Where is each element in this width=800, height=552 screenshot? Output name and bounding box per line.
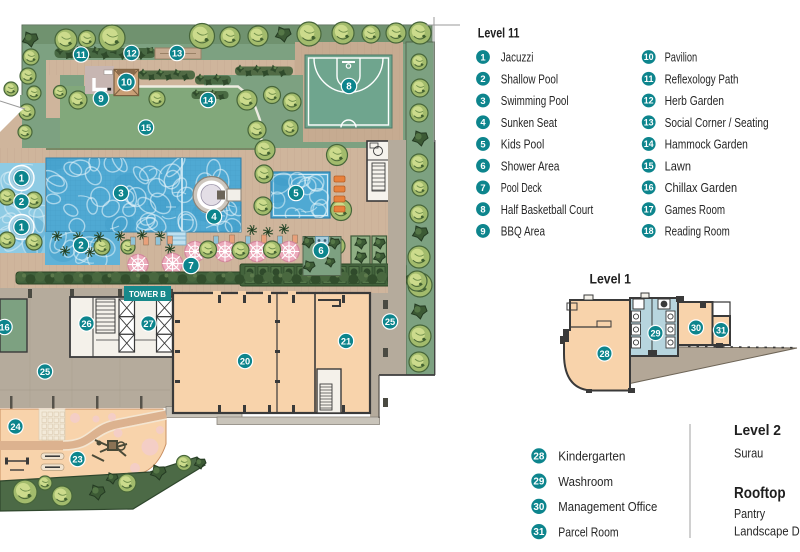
svg-text:1: 1 bbox=[480, 51, 485, 62]
svg-text:10: 10 bbox=[121, 78, 132, 89]
svg-text:Surau: Surau bbox=[734, 446, 763, 461]
svg-text:3: 3 bbox=[480, 95, 485, 106]
svg-text:8: 8 bbox=[346, 82, 352, 93]
svg-text:2: 2 bbox=[480, 73, 485, 84]
svg-text:12: 12 bbox=[644, 96, 654, 106]
svg-text:3: 3 bbox=[118, 189, 124, 200]
svg-text:2: 2 bbox=[78, 241, 84, 252]
svg-text:30: 30 bbox=[691, 323, 701, 333]
svg-text:Pool Deck: Pool Deck bbox=[501, 180, 542, 195]
svg-text:Jacuzzi: Jacuzzi bbox=[501, 50, 534, 65]
svg-text:Games Room: Games Room bbox=[665, 202, 726, 217]
svg-text:Level 1: Level 1 bbox=[590, 271, 632, 287]
svg-text:Reading Room: Reading Room bbox=[665, 224, 730, 239]
svg-text:12: 12 bbox=[126, 48, 136, 58]
svg-text:Lawn: Lawn bbox=[665, 158, 691, 173]
svg-text:Chillax Garden: Chillax Garden bbox=[665, 180, 738, 195]
svg-text:29: 29 bbox=[650, 328, 660, 338]
svg-text:4: 4 bbox=[480, 117, 486, 128]
svg-text:Social Corner / Seating: Social Corner / Seating bbox=[665, 115, 769, 130]
svg-text:21: 21 bbox=[341, 336, 351, 346]
svg-text:9: 9 bbox=[98, 94, 104, 105]
svg-text:11: 11 bbox=[76, 50, 86, 60]
svg-text:2: 2 bbox=[19, 197, 25, 208]
svg-text:13: 13 bbox=[172, 48, 182, 58]
svg-text:1: 1 bbox=[19, 174, 25, 185]
svg-text:16: 16 bbox=[0, 322, 10, 332]
svg-text:23: 23 bbox=[72, 454, 82, 464]
svg-text:6: 6 bbox=[318, 246, 324, 257]
svg-text:Shower Area: Shower Area bbox=[501, 158, 560, 173]
svg-text:10: 10 bbox=[644, 52, 654, 62]
svg-text:31: 31 bbox=[716, 325, 726, 335]
svg-text:Hammock Garden: Hammock Garden bbox=[665, 137, 748, 152]
svg-text:4: 4 bbox=[211, 212, 217, 223]
svg-text:11: 11 bbox=[644, 74, 653, 84]
svg-text:7: 7 bbox=[480, 182, 485, 193]
svg-text:Pavilion: Pavilion bbox=[665, 50, 698, 65]
svg-text:25: 25 bbox=[385, 317, 395, 327]
svg-text:31: 31 bbox=[533, 527, 544, 538]
svg-text:17: 17 bbox=[644, 204, 654, 214]
svg-text:26: 26 bbox=[81, 319, 91, 329]
svg-text:24: 24 bbox=[10, 422, 21, 432]
svg-text:Half Basketball Court: Half Basketball Court bbox=[501, 202, 594, 217]
svg-text:Reflexology Path: Reflexology Path bbox=[665, 71, 739, 86]
svg-text:1: 1 bbox=[19, 223, 25, 234]
svg-text:28: 28 bbox=[533, 452, 544, 463]
svg-text:20: 20 bbox=[240, 356, 250, 366]
svg-text:15: 15 bbox=[141, 123, 151, 133]
svg-text:BBQ Area: BBQ Area bbox=[501, 224, 546, 239]
svg-text:6: 6 bbox=[480, 160, 485, 171]
svg-text:Pantry: Pantry bbox=[734, 506, 765, 521]
svg-text:8: 8 bbox=[480, 204, 485, 215]
svg-text:Level 2: Level 2 bbox=[734, 423, 781, 439]
svg-text:29: 29 bbox=[533, 477, 544, 488]
svg-text:13: 13 bbox=[644, 117, 654, 127]
svg-text:15: 15 bbox=[644, 161, 654, 171]
svg-text:18: 18 bbox=[644, 226, 654, 236]
svg-text:16: 16 bbox=[644, 183, 654, 193]
svg-text:Kids Pool: Kids Pool bbox=[501, 137, 545, 152]
svg-text:7: 7 bbox=[188, 261, 194, 272]
svg-text:Landscape Deck: Landscape Deck bbox=[734, 523, 800, 538]
svg-text:Washroom: Washroom bbox=[558, 474, 613, 489]
svg-text:30: 30 bbox=[533, 502, 544, 513]
svg-text:Rooftop: Rooftop bbox=[734, 485, 786, 502]
svg-text:Sunken Seat: Sunken Seat bbox=[501, 115, 557, 130]
svg-text:Parcel Room: Parcel Room bbox=[558, 524, 618, 539]
svg-text:14: 14 bbox=[203, 95, 214, 105]
svg-text:Level 11: Level 11 bbox=[478, 25, 520, 41]
svg-text:14: 14 bbox=[644, 139, 654, 149]
svg-text:Management Office: Management Office bbox=[558, 499, 657, 514]
svg-text:27: 27 bbox=[143, 319, 153, 329]
svg-text:Swimming Pool: Swimming Pool bbox=[501, 93, 569, 108]
svg-text:28: 28 bbox=[599, 349, 609, 359]
svg-text:5: 5 bbox=[480, 138, 485, 149]
svg-text:9: 9 bbox=[480, 225, 485, 236]
svg-text:Kindergarten: Kindergarten bbox=[558, 449, 625, 464]
svg-text:Herb Garden: Herb Garden bbox=[665, 93, 724, 108]
svg-text:TOWER B: TOWER B bbox=[129, 289, 166, 299]
svg-text:5: 5 bbox=[293, 189, 299, 200]
svg-text:25: 25 bbox=[40, 367, 50, 377]
svg-text:Shallow Pool: Shallow Pool bbox=[501, 71, 558, 86]
